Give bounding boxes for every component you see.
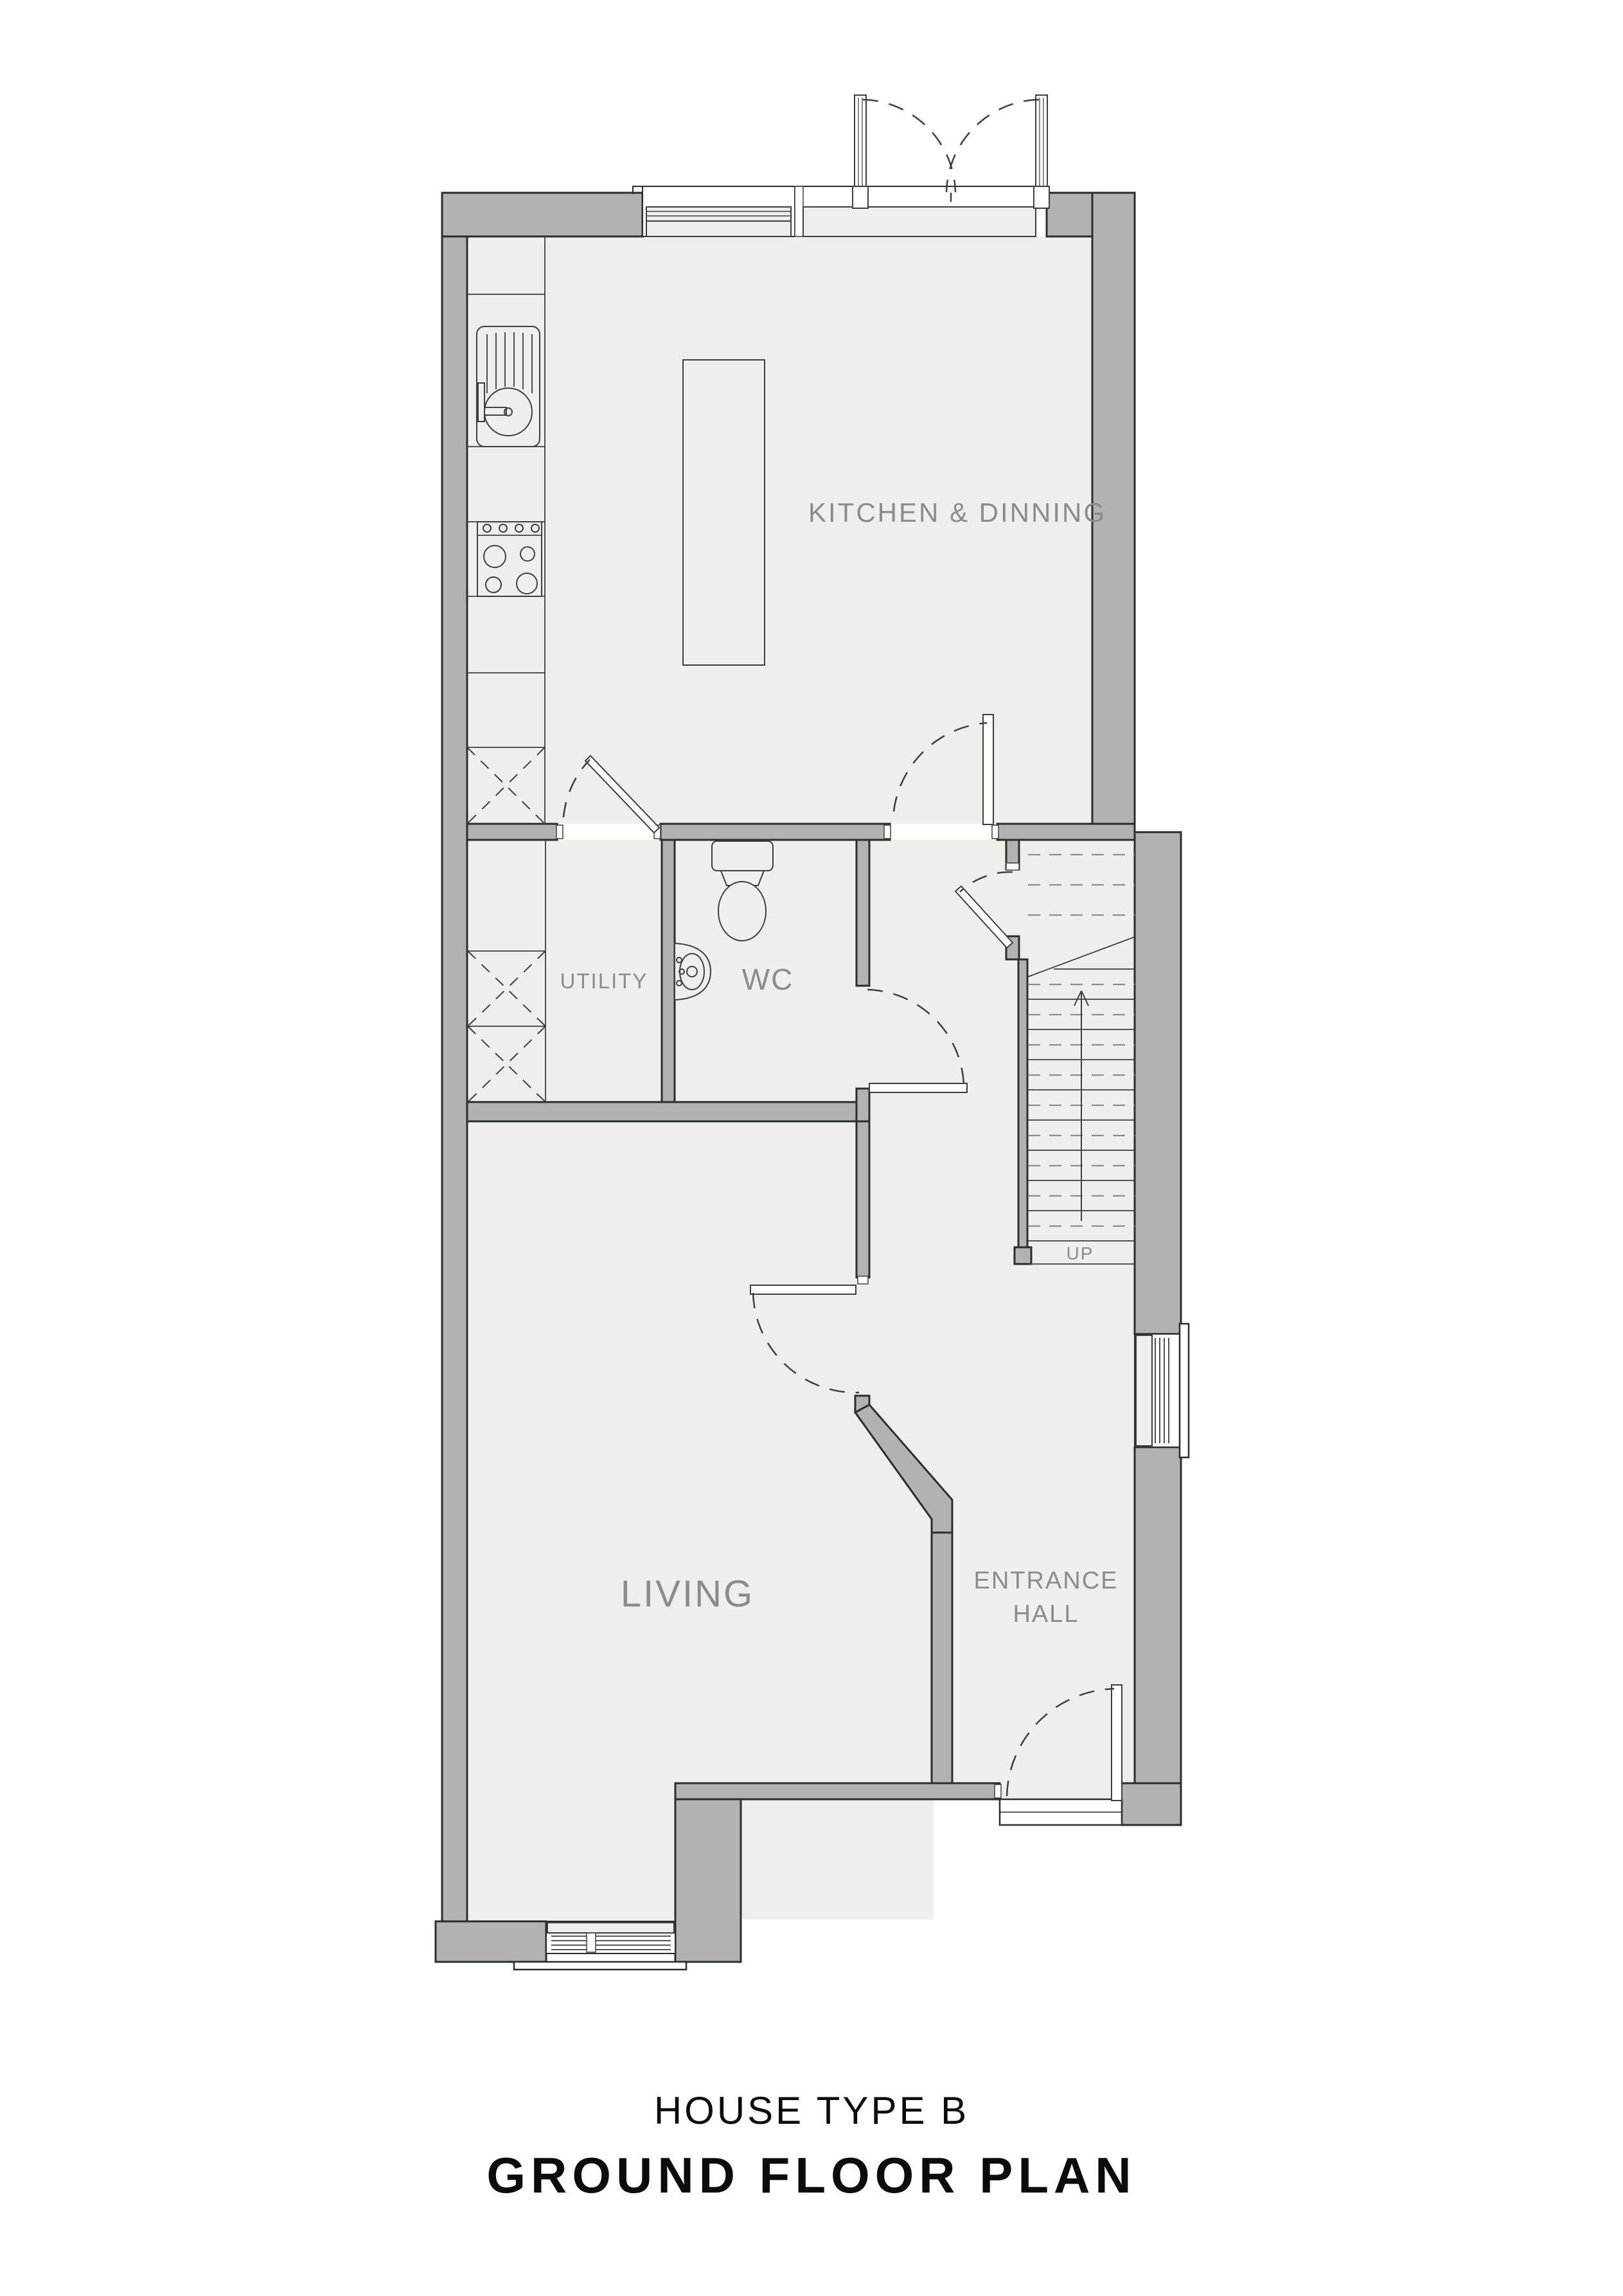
kitchen-window — [643, 186, 803, 236]
wall-kitchen-south-c — [997, 824, 1135, 840]
front-door-leaf — [1112, 1685, 1122, 1801]
kitchen-label: KITCHEN & DINNING — [808, 497, 1106, 528]
stair-newel-post — [1015, 1247, 1031, 1264]
entrance-hall-floor — [869, 1264, 1135, 1799]
wall-living-east — [856, 1121, 869, 1277]
wall-wc-east — [856, 840, 869, 986]
entrance-hall-label-line1: ENTRANCE — [973, 1567, 1118, 1594]
bay-window-sill — [514, 1962, 686, 1970]
wc-door-leaf — [869, 1083, 967, 1092]
french-door-leaf-right — [1034, 95, 1049, 208]
living-door-leaf — [750, 1285, 856, 1294]
utility-label: UTILITY — [560, 969, 648, 993]
window-jamb — [795, 186, 803, 236]
wall-wc-east-post — [856, 1089, 869, 1121]
wall-bay-right-column — [675, 1799, 741, 1962]
floor-areas — [467, 236, 1135, 1921]
side-window-sill — [1180, 1324, 1189, 1457]
kitchen-door-leaf — [983, 715, 993, 824]
wall-kitchen-south-b — [661, 824, 890, 840]
entrance-hall-label-line2: HALL — [1013, 1601, 1079, 1628]
bay-floor — [467, 1793, 679, 1921]
side-window — [1135, 1324, 1189, 1457]
wall-right-upper — [1135, 832, 1181, 1334]
wall-bottom-right-block — [1121, 1783, 1181, 1825]
french-door-swing-right — [946, 100, 1039, 192]
french-doors — [803, 95, 1049, 236]
wall-bay-left-block — [436, 1921, 546, 1962]
kitchen-window-board — [646, 221, 791, 236]
wall-top-left — [442, 193, 643, 236]
living-label: LIVING — [621, 1573, 754, 1615]
plan-subtitle: HOUSE TYPE B — [654, 2089, 969, 2132]
toilet-bowl — [718, 882, 766, 941]
plan-title: GROUND FLOOR PLAN — [486, 2147, 1136, 2203]
wall-utility-south — [467, 1102, 869, 1121]
floor-plan-canvas: UP — [0, 0, 1623, 2296]
french-door-threshold — [803, 207, 1036, 236]
wall-left — [442, 193, 467, 1921]
wc-label: WC — [742, 963, 794, 996]
french-door-leaf-left — [853, 95, 868, 208]
title-block: HOUSE TYPE B GROUND FLOOR PLAN — [486, 2089, 1136, 2203]
bay-window-mullion — [587, 1933, 596, 1952]
wall-right-lower — [1135, 1447, 1181, 1825]
wall-wc-west — [662, 840, 675, 1102]
stair-up-label: UP — [1067, 1243, 1094, 1263]
wall-kitchen-south-a — [467, 824, 557, 840]
wall-bottom-band — [675, 1783, 1000, 1799]
top-openings — [633, 95, 1049, 236]
stair-rail — [1018, 959, 1027, 1249]
french-door-swing-left — [863, 100, 955, 192]
kitchen-window-glazing — [646, 207, 791, 221]
kitchen-floor — [467, 236, 1092, 824]
wall-hall-west — [932, 1533, 952, 1783]
